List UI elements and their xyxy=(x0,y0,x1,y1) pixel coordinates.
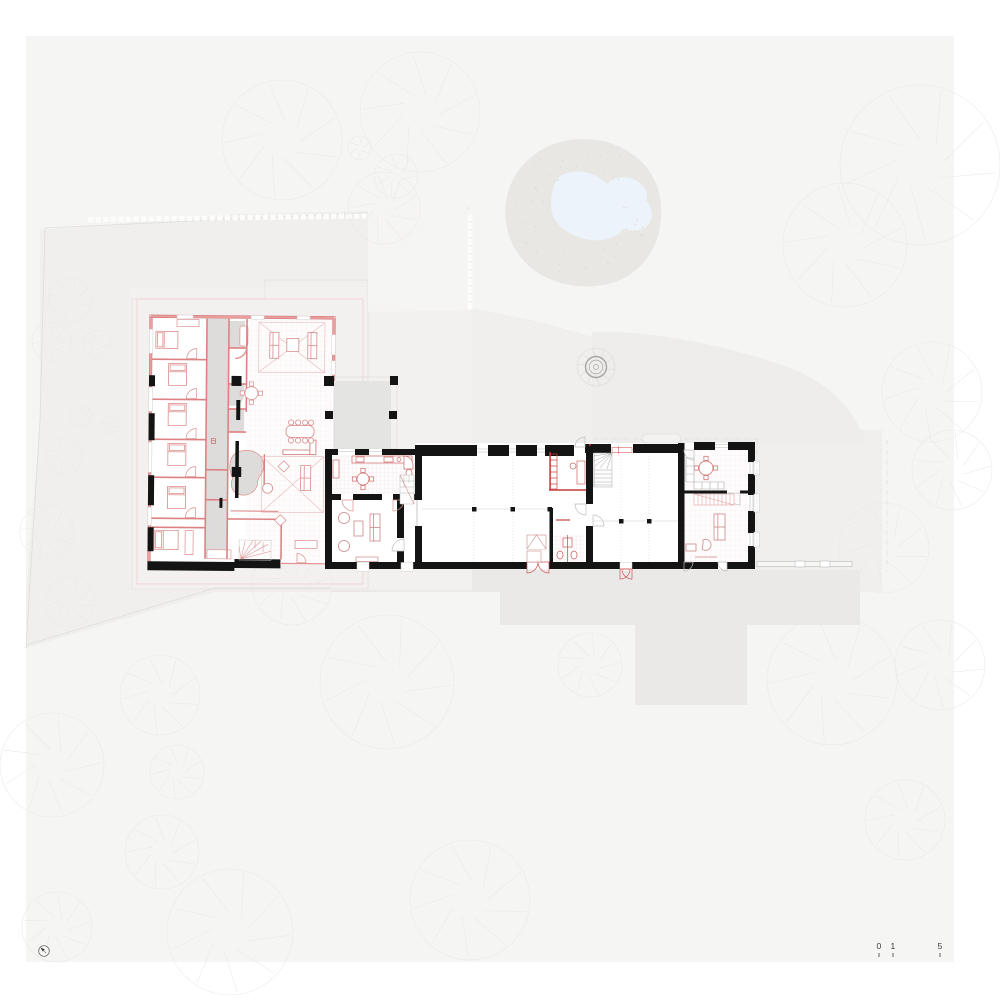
svg-text:1: 1 xyxy=(891,941,896,951)
svg-text:5: 5 xyxy=(938,941,943,951)
svg-text:0: 0 xyxy=(877,941,882,951)
